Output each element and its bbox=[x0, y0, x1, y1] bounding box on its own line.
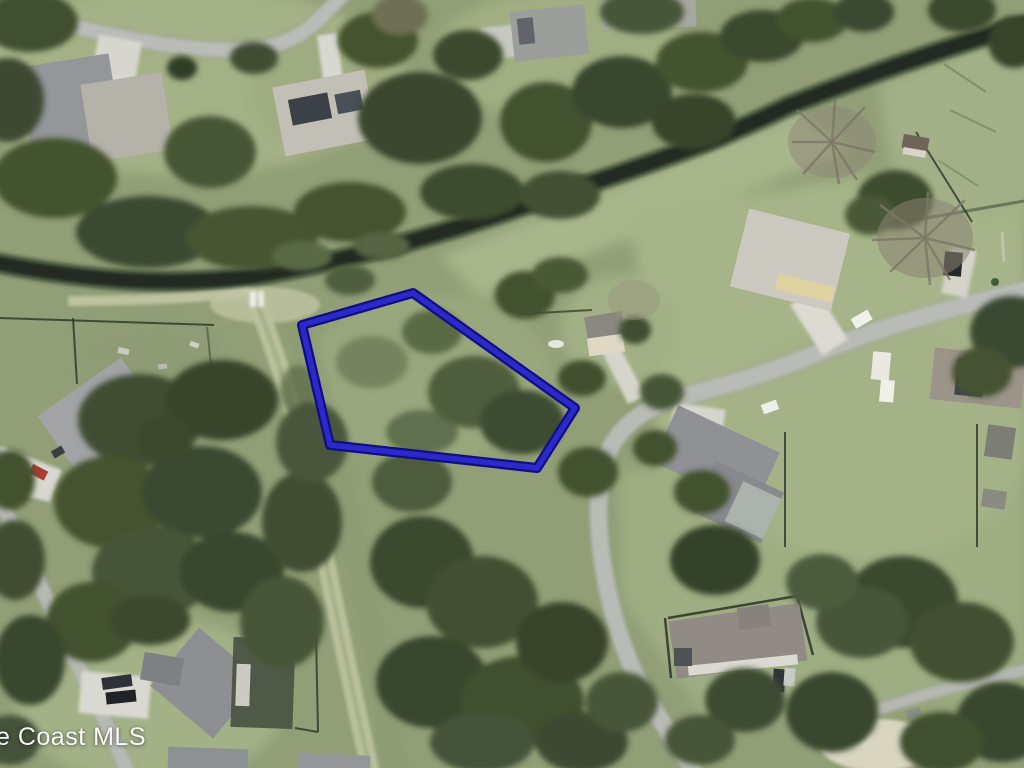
aerial-photo-frame: e Coast MLS bbox=[0, 0, 1024, 768]
aerial-photo bbox=[0, 0, 1024, 768]
watermark-text: e Coast MLS bbox=[0, 723, 146, 752]
